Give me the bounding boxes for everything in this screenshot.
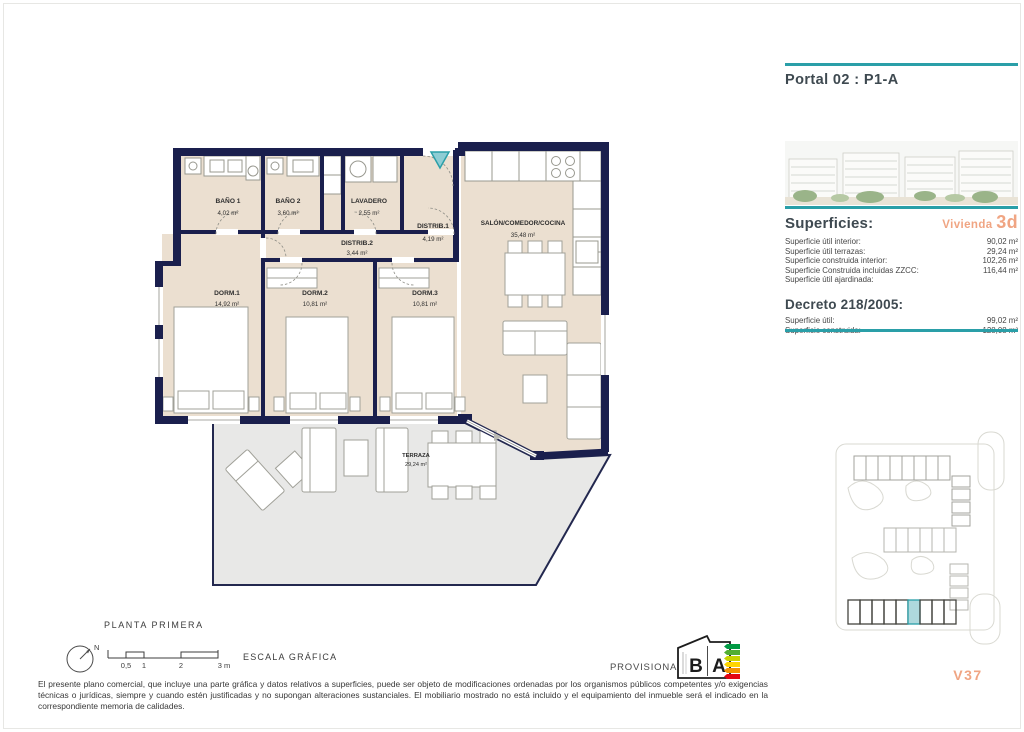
- room-bano1-area: 4,02 m²: [218, 210, 239, 217]
- unit-code: V37: [936, 667, 1000, 683]
- room-distrib2-name: DISTRIB.2: [341, 240, 373, 247]
- scale-tick-3m: 3 m: [218, 661, 231, 670]
- divider-top: [785, 63, 1018, 66]
- row-value: 116,44 m²: [983, 266, 1018, 276]
- room-lavadero-name: LAVADERO: [351, 198, 387, 205]
- surface-panel: Superficies: Vivienda 3d Superficie útil…: [785, 212, 1018, 335]
- vivienda-value: 3d: [996, 212, 1018, 232]
- room-salon-area: 35,48 m²: [511, 232, 535, 239]
- row-label: Superficie Construida incluidas ZZCC:: [785, 266, 919, 276]
- floor-level-label: PLANTA PRIMERA: [104, 620, 204, 630]
- provisional-label: PROVISIONAL: [610, 662, 683, 673]
- site-plan: [828, 428, 1014, 648]
- plan-sheet: BAÑO 1 4,02 m² BAÑO 2 3,60 m² LAVADERO 2…: [0, 0, 1024, 732]
- vivienda-tag: Vivienda 3d: [942, 212, 1018, 233]
- row-label: Superficie útil terrazas:: [785, 247, 865, 257]
- superficie-row: Superficie útil terrazas:29,24 m²: [785, 247, 1018, 257]
- room-bano1-name: BAÑO 1: [216, 196, 241, 205]
- room-dorm1-name: DORM.1: [214, 290, 240, 297]
- decreto-row: Superficie útil:99,02 m²: [785, 316, 1018, 326]
- portal-title: Portal 02 : P1-A: [785, 72, 899, 88]
- room-terraza-name: TERRAZA: [402, 453, 431, 459]
- row-value: 102,26 m²: [982, 256, 1018, 266]
- legal-disclaimer: El presente plano comercial, que incluye…: [38, 679, 768, 713]
- room-distrib1-name: DISTRIB.1: [417, 223, 449, 230]
- scale-caption: ESCALA GRÁFICA: [243, 652, 337, 662]
- building-render: [785, 141, 1018, 205]
- superficie-row: Superficie útil ajardinada:: [785, 275, 1018, 285]
- room-lavadero-area: 2,55 m²: [359, 210, 380, 217]
- room-dorm1-area: 14,92 m²: [215, 301, 239, 308]
- north-letter: N: [94, 643, 99, 652]
- room-dorm2-name: DORM.2: [302, 290, 328, 297]
- room-distrib2-area: 3,44 m²: [347, 250, 368, 257]
- room-dorm3-area: 10,81 m²: [413, 301, 437, 308]
- scale-tick-05: 0,5: [121, 661, 131, 670]
- row-label: Superficie útil ajardinada:: [785, 275, 874, 285]
- room-salon-name: SALÓN/COMEDOR/COCINA: [481, 218, 566, 227]
- row-value: 90,02 m²: [987, 237, 1018, 247]
- divider-mid: [785, 206, 1018, 209]
- row-value: 99,02 m²: [987, 316, 1018, 326]
- scale-tick-2: 2: [179, 661, 183, 670]
- superficies-heading: Superficies:: [785, 215, 873, 232]
- row-label: Superficie útil interior:: [785, 237, 861, 247]
- energy-letter-b: B: [689, 656, 703, 677]
- scale-bar: 0,5 1 2 3 m: [100, 644, 260, 670]
- row-value: 29,24 m²: [987, 247, 1018, 257]
- divider-bottom: [785, 329, 1018, 332]
- site-plan-highlighted-unit: [908, 600, 920, 624]
- vivienda-label: Vivienda: [942, 219, 992, 231]
- room-dorm3-name: DORM.3: [412, 290, 438, 297]
- energy-letter-a: A: [712, 656, 726, 677]
- scale-tick-1: 1: [142, 661, 146, 670]
- room-terraza-area: 29,24 m²: [405, 462, 427, 468]
- superficie-row: Superficie construida interior:102,26 m²: [785, 256, 1018, 266]
- decreto-heading: Decreto 218/2005:: [785, 297, 1018, 312]
- energy-certificate-icon: B A: [674, 632, 744, 682]
- room-bano2-area: 3,60 m²: [278, 210, 299, 217]
- superficie-row: Superficie útil interior:90,02 m²: [785, 237, 1018, 247]
- row-label: Superficie construida interior:: [785, 256, 887, 266]
- room-dorm2-area: 10,81 m²: [303, 301, 327, 308]
- superficie-row: Superficie Construida incluidas ZZCC:116…: [785, 266, 1018, 276]
- floorplan: BAÑO 1 4,02 m² BAÑO 2 3,60 m² LAVADERO 2…: [140, 135, 630, 605]
- row-label: Superficie útil:: [785, 316, 835, 326]
- room-distrib1-area: 4,19 m²: [423, 236, 444, 243]
- room-bano2-name: BAÑO 2: [276, 196, 301, 205]
